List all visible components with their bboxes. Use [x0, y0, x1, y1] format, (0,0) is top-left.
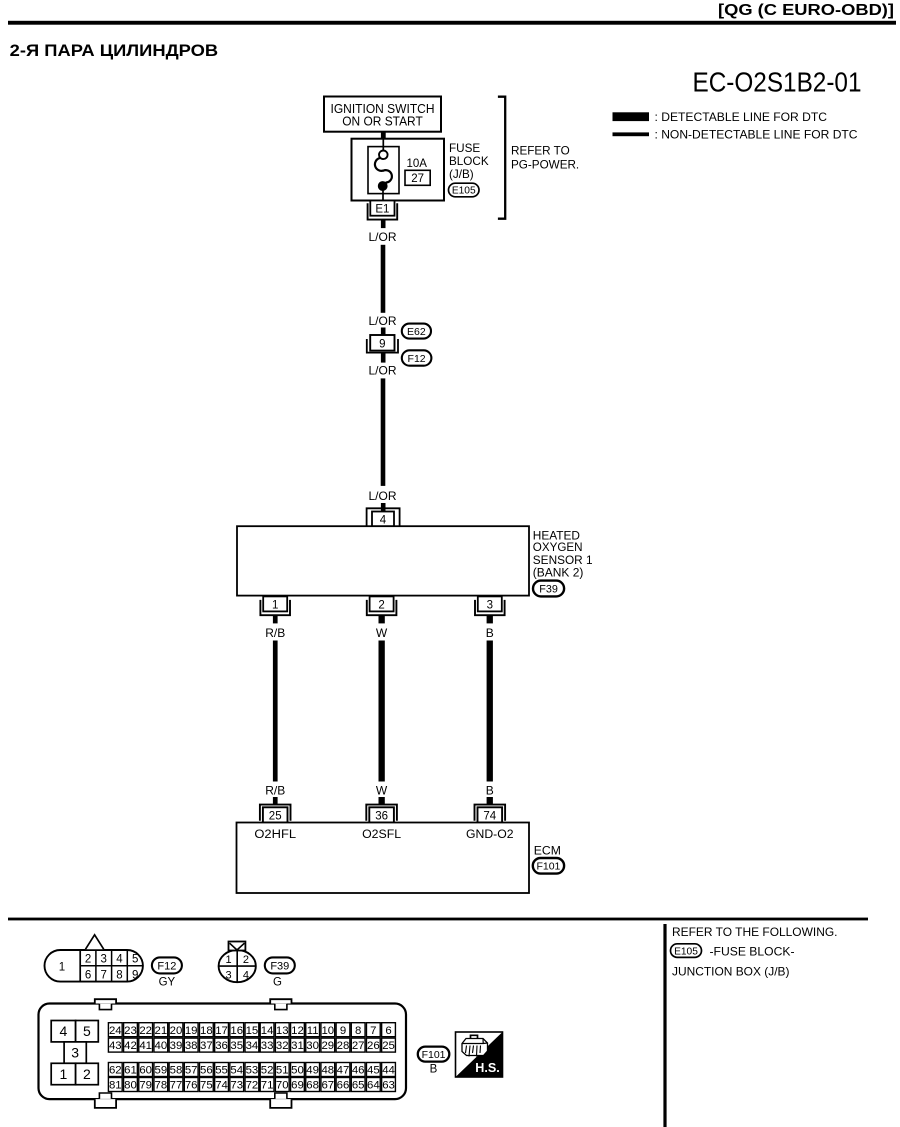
svg-text:10A: 10A — [407, 158, 428, 170]
svg-text:F39: F39 — [539, 583, 558, 595]
svg-text:8: 8 — [355, 1025, 361, 1037]
svg-text:76: 76 — [185, 1080, 198, 1092]
svg-text:80: 80 — [124, 1080, 137, 1092]
svg-text:L/OR: L/OR — [368, 364, 396, 378]
svg-text:36: 36 — [375, 810, 388, 822]
svg-text:11: 11 — [307, 1025, 319, 1037]
svg-text:28: 28 — [337, 1040, 350, 1052]
svg-text:78: 78 — [154, 1080, 167, 1092]
svg-text:10: 10 — [321, 1025, 334, 1037]
svg-text:1: 1 — [59, 962, 65, 974]
svg-text:1: 1 — [60, 1066, 68, 1082]
svg-text:22: 22 — [139, 1025, 152, 1037]
svg-text:F101: F101 — [422, 1049, 446, 1061]
svg-text:66: 66 — [337, 1080, 350, 1092]
svg-text:R/B: R/B — [265, 626, 285, 640]
svg-text:L/OR: L/OR — [368, 230, 396, 244]
svg-text:: DETECTABLE LINE FOR DTC: : DETECTABLE LINE FOR DTC — [655, 110, 828, 124]
svg-text:B: B — [486, 626, 494, 640]
svg-text:B: B — [430, 1064, 438, 1076]
svg-text:26: 26 — [367, 1040, 380, 1052]
svg-text:36: 36 — [215, 1040, 228, 1052]
svg-text:8: 8 — [116, 969, 122, 981]
svg-text:2: 2 — [85, 954, 91, 966]
svg-text:PG-POWER.: PG-POWER. — [511, 159, 579, 172]
svg-text:3: 3 — [487, 600, 493, 612]
svg-text:ON OR START: ON OR START — [342, 113, 423, 128]
svg-text:30: 30 — [306, 1040, 319, 1052]
svg-text:38: 38 — [185, 1040, 198, 1052]
svg-text:(BANK 2): (BANK 2) — [533, 568, 584, 580]
svg-text:L/OR: L/OR — [368, 489, 396, 503]
svg-text:F101: F101 — [536, 861, 560, 873]
svg-text:5: 5 — [83, 1023, 91, 1039]
svg-text:16: 16 — [230, 1025, 243, 1037]
svg-text:E105: E105 — [674, 946, 698, 957]
svg-text:O2SFL: O2SFL — [362, 827, 401, 841]
svg-text:43: 43 — [109, 1040, 122, 1052]
svg-text:64: 64 — [367, 1080, 380, 1092]
svg-text:20: 20 — [170, 1025, 183, 1037]
svg-text:H.S.: H.S. — [475, 1061, 500, 1075]
svg-text:HEATED: HEATED — [533, 530, 580, 542]
svg-text:FUSE: FUSE — [449, 142, 480, 155]
svg-text:5: 5 — [132, 954, 138, 966]
svg-text:4: 4 — [60, 1023, 68, 1039]
svg-text:60: 60 — [139, 1065, 152, 1077]
svg-text:7: 7 — [370, 1025, 376, 1037]
svg-text:W: W — [376, 784, 388, 798]
svg-text:19: 19 — [185, 1025, 198, 1037]
svg-text:3: 3 — [71, 1045, 79, 1061]
svg-text:69: 69 — [291, 1080, 304, 1092]
svg-text:E1: E1 — [375, 204, 389, 216]
svg-text:74: 74 — [215, 1080, 228, 1092]
svg-text:65: 65 — [352, 1080, 365, 1092]
svg-text:BLOCK: BLOCK — [449, 155, 489, 168]
svg-text:68: 68 — [306, 1080, 319, 1092]
svg-text:1: 1 — [272, 600, 278, 612]
svg-text:51: 51 — [276, 1065, 289, 1077]
svg-text:37: 37 — [200, 1040, 213, 1052]
svg-text:R/B: R/B — [265, 784, 285, 798]
svg-text:32: 32 — [276, 1040, 289, 1052]
svg-text:49: 49 — [306, 1065, 319, 1077]
svg-text:75: 75 — [200, 1080, 213, 1092]
svg-text:-FUSE BLOCK-: -FUSE BLOCK- — [710, 944, 795, 958]
svg-text:GY: GY — [159, 977, 176, 989]
svg-text:81: 81 — [109, 1080, 122, 1092]
svg-text:G: G — [273, 977, 282, 989]
svg-text:F12: F12 — [157, 960, 176, 972]
svg-text:29: 29 — [321, 1040, 334, 1052]
svg-text:SENSOR 1: SENSOR 1 — [533, 555, 593, 567]
svg-text:24: 24 — [109, 1025, 122, 1037]
svg-text:(J/B): (J/B) — [449, 168, 474, 181]
svg-text:33: 33 — [261, 1040, 274, 1052]
svg-text:27: 27 — [411, 173, 424, 185]
svg-text:B: B — [486, 784, 494, 798]
svg-text:L/OR: L/OR — [368, 314, 396, 328]
svg-text:47: 47 — [337, 1065, 350, 1077]
svg-text:6: 6 — [385, 1025, 391, 1037]
svg-text:[QG (C EURO-OBD)]: [QG (C EURO-OBD)] — [718, 2, 894, 19]
svg-text:2: 2 — [378, 600, 384, 612]
svg-text:52: 52 — [261, 1065, 274, 1077]
svg-text:41: 41 — [139, 1040, 152, 1052]
svg-text:F12: F12 — [408, 353, 426, 365]
svg-text:9: 9 — [132, 969, 138, 981]
svg-text:25: 25 — [269, 810, 282, 822]
svg-text:GND-O2: GND-O2 — [466, 827, 514, 841]
svg-text:42: 42 — [124, 1040, 137, 1052]
svg-text:E105: E105 — [452, 186, 476, 197]
svg-text:44: 44 — [382, 1065, 395, 1077]
svg-text:58: 58 — [170, 1065, 183, 1077]
svg-text:JUNCTION BOX (J/B): JUNCTION BOX (J/B) — [672, 965, 790, 979]
svg-text:E62: E62 — [407, 326, 426, 338]
svg-text:74: 74 — [483, 810, 496, 822]
svg-text:50: 50 — [291, 1065, 304, 1077]
svg-text:39: 39 — [170, 1040, 183, 1052]
svg-text:79: 79 — [139, 1080, 152, 1092]
svg-text:48: 48 — [321, 1065, 334, 1077]
svg-text:17: 17 — [215, 1025, 228, 1037]
svg-text:56: 56 — [200, 1065, 213, 1077]
svg-text:34: 34 — [246, 1040, 259, 1052]
svg-text:57: 57 — [185, 1065, 198, 1077]
svg-text:REFER TO: REFER TO — [511, 145, 570, 158]
svg-text:: NON-DETECTABLE LINE FOR DTC: : NON-DETECTABLE LINE FOR DTC — [655, 128, 858, 142]
svg-text:72: 72 — [246, 1080, 259, 1092]
svg-text:77: 77 — [170, 1080, 183, 1092]
svg-text:21: 21 — [154, 1025, 167, 1037]
svg-text:63: 63 — [382, 1080, 395, 1092]
svg-text:27: 27 — [352, 1040, 365, 1052]
svg-text:3: 3 — [101, 954, 107, 966]
svg-text:1: 1 — [225, 954, 231, 966]
svg-text:53: 53 — [246, 1065, 259, 1077]
svg-text:35: 35 — [230, 1040, 243, 1052]
svg-text:71: 71 — [261, 1080, 274, 1092]
svg-text:70: 70 — [276, 1080, 289, 1092]
svg-text:4: 4 — [116, 954, 123, 966]
svg-text:40: 40 — [154, 1040, 167, 1052]
svg-text:18: 18 — [200, 1025, 213, 1037]
svg-text:2: 2 — [83, 1066, 91, 1082]
svg-text:9: 9 — [340, 1025, 346, 1037]
svg-text:25: 25 — [382, 1040, 395, 1052]
svg-text:13: 13 — [276, 1025, 289, 1037]
svg-text:EC-O2S1B2-01: EC-O2S1B2-01 — [693, 66, 862, 97]
svg-text:9: 9 — [379, 339, 385, 351]
svg-text:2: 2 — [243, 954, 249, 966]
svg-text:12: 12 — [291, 1025, 304, 1037]
svg-text:31: 31 — [291, 1040, 304, 1052]
svg-text:14: 14 — [261, 1025, 274, 1037]
svg-text:73: 73 — [230, 1080, 243, 1092]
svg-text:15: 15 — [246, 1025, 259, 1037]
svg-text:4: 4 — [243, 970, 249, 982]
svg-text:54: 54 — [230, 1065, 243, 1077]
svg-text:2-Я ПАРА ЦИЛИНДРОВ: 2-Я ПАРА ЦИЛИНДРОВ — [10, 42, 219, 60]
svg-text:46: 46 — [352, 1065, 365, 1077]
svg-text:61: 61 — [124, 1065, 137, 1077]
svg-text:ECM: ECM — [534, 844, 561, 858]
svg-text:45: 45 — [367, 1065, 380, 1077]
svg-text:3: 3 — [225, 970, 231, 982]
svg-text:62: 62 — [109, 1065, 122, 1077]
svg-text:REFER TO THE FOLLOWING.: REFER TO THE FOLLOWING. — [672, 925, 838, 939]
svg-text:23: 23 — [124, 1025, 137, 1037]
svg-text:4: 4 — [380, 514, 387, 526]
svg-text:7: 7 — [101, 969, 107, 981]
svg-text:59: 59 — [154, 1065, 167, 1077]
svg-text:67: 67 — [321, 1080, 334, 1092]
svg-text:OXYGEN: OXYGEN — [533, 542, 583, 554]
svg-text:F39: F39 — [270, 960, 289, 972]
svg-text:O2HFL: O2HFL — [254, 827, 296, 841]
svg-text:6: 6 — [85, 969, 91, 981]
svg-text:W: W — [376, 626, 388, 640]
svg-text:55: 55 — [215, 1065, 228, 1077]
